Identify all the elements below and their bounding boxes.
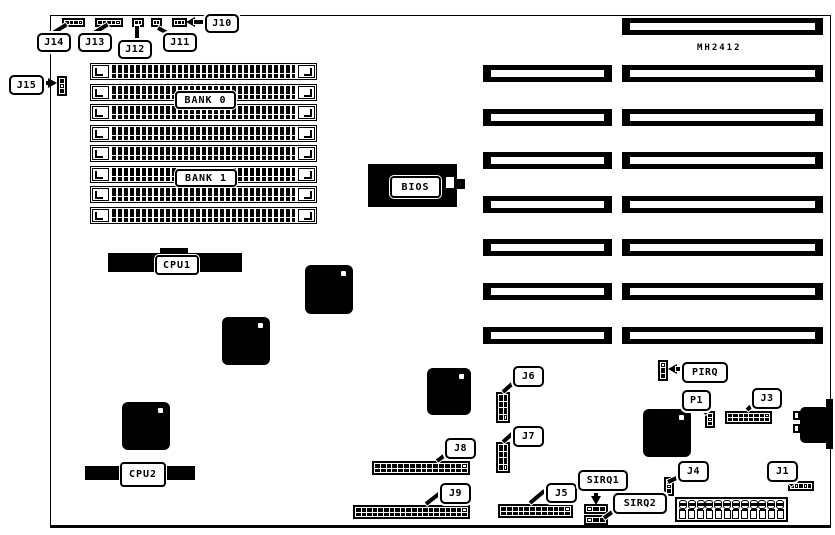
pin-cell bbox=[457, 508, 462, 512]
cpu1-label: CPU1 bbox=[155, 255, 199, 275]
pin-cell bbox=[429, 513, 434, 517]
simm-clip bbox=[92, 86, 109, 99]
callout-j8: J8 bbox=[445, 438, 476, 459]
pin-cell bbox=[356, 508, 361, 512]
pin-cell bbox=[462, 513, 467, 517]
pin-cell bbox=[504, 465, 508, 471]
callout-j12-label: J12 bbox=[125, 44, 145, 55]
pin-cell bbox=[795, 484, 798, 488]
pin-cell bbox=[499, 395, 503, 401]
power-connector bbox=[675, 497, 788, 522]
bank1-text: BANK 1 bbox=[185, 173, 227, 184]
j5-header bbox=[498, 504, 573, 518]
callout-j5-label: J5 bbox=[555, 488, 568, 499]
power-pin bbox=[705, 500, 713, 509]
pin-cell bbox=[542, 507, 547, 511]
pin-cell bbox=[356, 513, 361, 517]
callout-pirq-label: PIRQ bbox=[692, 367, 718, 378]
j10-jumper bbox=[172, 18, 187, 27]
cpu1-socket-tab bbox=[160, 248, 188, 253]
pin-cell bbox=[434, 508, 439, 512]
pin-cell bbox=[499, 408, 503, 414]
cpu2-text: CPU2 bbox=[129, 469, 157, 480]
pin-cell bbox=[504, 402, 508, 408]
pin-cell bbox=[373, 508, 378, 512]
pin-cell bbox=[398, 464, 403, 468]
simm-socket bbox=[90, 145, 317, 162]
j7-header bbox=[496, 442, 510, 473]
pin-cell bbox=[548, 507, 553, 511]
pin-cell bbox=[661, 374, 665, 378]
pin-cell bbox=[744, 414, 748, 417]
simm-socket bbox=[90, 186, 317, 203]
pin-cell bbox=[418, 513, 423, 517]
ic-chip bbox=[643, 409, 691, 457]
power-hole bbox=[724, 510, 731, 519]
power-pin bbox=[758, 500, 766, 509]
callout-j14: J14 bbox=[37, 33, 71, 52]
callout-sirq2: SIRQ2 bbox=[613, 493, 667, 514]
pin-cell bbox=[70, 21, 74, 24]
callout-p1-label: P1 bbox=[690, 395, 703, 406]
pin-cell bbox=[457, 513, 462, 517]
simm-clip bbox=[298, 106, 315, 119]
motherboard-diagram: J14 J13 J12 J11 J10 J15 BANK 0 BANK 1 MH… bbox=[0, 0, 835, 535]
pin-cell bbox=[499, 458, 503, 464]
pin-cell bbox=[404, 469, 409, 473]
j15-jumper bbox=[57, 76, 67, 96]
simm-contacts bbox=[112, 147, 295, 160]
expansion-slot-segment bbox=[622, 283, 823, 300]
expansion-slot-segment bbox=[622, 18, 823, 35]
pin-cell bbox=[504, 415, 508, 421]
pin-cell bbox=[504, 408, 508, 414]
pin-cell bbox=[499, 452, 503, 458]
pin-cell bbox=[135, 21, 138, 24]
sirq1-jumper bbox=[584, 504, 608, 514]
pin-cell bbox=[760, 414, 764, 417]
pin-cell bbox=[462, 464, 467, 468]
pin-cell bbox=[499, 465, 503, 471]
pin-cell bbox=[178, 21, 180, 24]
pin-cell bbox=[587, 507, 592, 511]
simm-clip bbox=[298, 147, 315, 160]
pin-cell bbox=[446, 508, 451, 512]
pin-cell bbox=[565, 507, 570, 511]
pin-cell bbox=[390, 508, 395, 512]
callout-sirq1: SIRQ1 bbox=[578, 470, 628, 491]
ic-chip bbox=[222, 317, 270, 365]
pin-cell bbox=[559, 507, 564, 511]
pin-cell bbox=[60, 89, 64, 93]
callout-j4: J4 bbox=[678, 461, 709, 482]
pin-cell bbox=[728, 418, 732, 421]
power-pin bbox=[750, 500, 758, 509]
j6-header bbox=[496, 392, 510, 423]
callout-j12: J12 bbox=[118, 40, 152, 59]
pin-cell bbox=[439, 469, 444, 473]
power-hole bbox=[750, 510, 757, 519]
pin-cell bbox=[804, 484, 807, 488]
power-hole bbox=[777, 510, 784, 519]
expansion-slot-segment bbox=[622, 327, 823, 344]
power-pin bbox=[688, 500, 696, 509]
pin-cell bbox=[451, 508, 456, 512]
bios-label: BIOS bbox=[390, 176, 441, 198]
pin-cell bbox=[384, 513, 389, 517]
callout-pirq: PIRQ bbox=[682, 362, 728, 383]
pin-cell bbox=[157, 21, 159, 24]
pin-cell bbox=[60, 79, 64, 83]
pin-cell bbox=[434, 513, 439, 517]
pin-cell bbox=[499, 445, 503, 451]
power-hole bbox=[688, 510, 695, 519]
pin-cell bbox=[74, 21, 78, 24]
pin-cell bbox=[440, 513, 445, 517]
pin-cell bbox=[733, 414, 737, 417]
pin-cell bbox=[378, 513, 383, 517]
expansion-slot-segment bbox=[483, 109, 612, 126]
pin-cell bbox=[427, 464, 432, 468]
pin-cell bbox=[749, 418, 753, 421]
callout-j3-label: J3 bbox=[760, 393, 773, 404]
pin-cell bbox=[462, 469, 467, 473]
pin-cell bbox=[524, 507, 529, 511]
arrowhead bbox=[48, 78, 57, 88]
j8-header bbox=[372, 461, 470, 475]
simm-contacts bbox=[112, 65, 295, 78]
pin-cell bbox=[542, 512, 547, 516]
callout-j11-label: J11 bbox=[170, 37, 190, 48]
power-hole bbox=[759, 510, 766, 519]
pin-cell bbox=[412, 508, 417, 512]
pin-cell bbox=[378, 508, 383, 512]
pin-cell bbox=[433, 464, 438, 468]
callout-j8-label: J8 bbox=[454, 443, 467, 454]
pin-cell bbox=[799, 484, 802, 488]
pin-cell bbox=[462, 508, 467, 512]
pin-cell bbox=[440, 508, 445, 512]
pin-cell bbox=[708, 418, 712, 421]
power-pin bbox=[767, 500, 775, 509]
callout-j10-label: J10 bbox=[212, 18, 232, 29]
pin-cell bbox=[175, 21, 177, 24]
simm-socket bbox=[90, 63, 317, 80]
callout-j3: J3 bbox=[752, 388, 782, 409]
pin-cell bbox=[362, 513, 367, 517]
pin-cell bbox=[416, 464, 421, 468]
pin-cell bbox=[412, 513, 417, 517]
callout-j6-label: J6 bbox=[522, 371, 535, 382]
pin-cell bbox=[808, 484, 811, 488]
pin-cell bbox=[456, 464, 461, 468]
pin-cell bbox=[708, 422, 712, 425]
keyboard-connector-tab bbox=[793, 424, 800, 433]
part-number-text: MH2412 bbox=[697, 43, 742, 53]
pin-cell bbox=[373, 513, 378, 517]
pin-cell bbox=[418, 508, 423, 512]
pin-cell bbox=[536, 512, 541, 516]
expansion-slot-segment bbox=[622, 152, 823, 169]
bank0-label: BANK 0 bbox=[175, 91, 236, 109]
simm-clip bbox=[92, 65, 109, 78]
power-hole bbox=[706, 510, 713, 519]
pin-cell bbox=[499, 415, 503, 421]
pin-cell bbox=[513, 507, 518, 511]
pin-cell bbox=[760, 418, 764, 421]
pin-cell bbox=[392, 464, 397, 468]
callout-j11: J11 bbox=[163, 33, 197, 52]
power-hole bbox=[768, 510, 775, 519]
j9-header bbox=[353, 505, 470, 519]
power-pin bbox=[714, 500, 722, 509]
simm-clip bbox=[92, 127, 109, 140]
simm-clip bbox=[298, 65, 315, 78]
pin-cell bbox=[507, 512, 512, 516]
pin-cell bbox=[410, 464, 415, 468]
pin-cell bbox=[362, 508, 367, 512]
pin-cell bbox=[410, 469, 415, 473]
callout-j7: J7 bbox=[513, 426, 544, 447]
pin-cell bbox=[554, 507, 559, 511]
pin-cell bbox=[667, 485, 671, 489]
expansion-slot-segment bbox=[483, 239, 612, 256]
pin-cell bbox=[116, 21, 120, 24]
callout-j15: J15 bbox=[9, 75, 44, 95]
pin-cell bbox=[112, 21, 116, 24]
pin-cell bbox=[433, 469, 438, 473]
ic-chip bbox=[427, 368, 471, 415]
pin-cell bbox=[451, 464, 456, 468]
simm-socket bbox=[90, 125, 317, 142]
callout-j6: J6 bbox=[513, 366, 544, 387]
pin-cell bbox=[661, 368, 665, 372]
pin-cell bbox=[513, 512, 518, 516]
pin-cell bbox=[749, 414, 753, 417]
callout-j9: J9 bbox=[440, 483, 471, 504]
pin-cell bbox=[593, 507, 598, 511]
simm-socket bbox=[90, 207, 317, 224]
power-pin bbox=[741, 500, 749, 509]
expansion-slot-segment bbox=[622, 65, 823, 82]
simm-clip bbox=[298, 209, 315, 222]
pin-cell bbox=[519, 512, 524, 516]
power-pin bbox=[697, 500, 705, 509]
callout-j7-label: J7 bbox=[522, 431, 535, 442]
pin-cell bbox=[154, 21, 156, 24]
ic-chip bbox=[122, 402, 170, 450]
j13-jumper bbox=[95, 18, 123, 27]
callout-j15-label: J15 bbox=[17, 80, 37, 91]
callout-j1-label: J1 bbox=[776, 466, 789, 477]
j11-jumper bbox=[151, 18, 162, 27]
callout-j10: J10 bbox=[205, 14, 239, 33]
ic-chip bbox=[305, 265, 353, 314]
pin-cell bbox=[530, 507, 535, 511]
pin-cell bbox=[401, 513, 406, 517]
simm-clip bbox=[298, 168, 315, 181]
pin-cell bbox=[530, 512, 535, 516]
callout-j13: J13 bbox=[78, 33, 112, 52]
expansion-slot-segment bbox=[483, 152, 612, 169]
simm-clip bbox=[92, 168, 109, 181]
pin-cell bbox=[445, 469, 450, 473]
pin-cell bbox=[504, 445, 508, 451]
pin-cell bbox=[422, 464, 427, 468]
power-hole bbox=[741, 510, 748, 519]
pin-cell bbox=[60, 84, 64, 88]
pin-cell bbox=[79, 21, 83, 24]
pin-cell bbox=[398, 469, 403, 473]
callout-j13-label: J13 bbox=[85, 37, 105, 48]
pin-cell bbox=[375, 469, 380, 473]
expansion-slot-segment bbox=[483, 65, 612, 82]
simm-clip bbox=[92, 209, 109, 222]
pin-cell bbox=[504, 452, 508, 458]
pin-cell bbox=[661, 363, 665, 367]
simm-contacts bbox=[112, 209, 295, 222]
pin-cell bbox=[423, 513, 428, 517]
expansion-slot-segment bbox=[483, 327, 612, 344]
pin-cell bbox=[600, 507, 605, 511]
bank0-text: BANK 0 bbox=[184, 95, 226, 106]
callout-j5: J5 bbox=[546, 483, 577, 503]
pin-cell bbox=[423, 508, 428, 512]
pin-cell bbox=[733, 418, 737, 421]
power-hole bbox=[697, 510, 704, 519]
power-pin bbox=[776, 500, 784, 509]
pin-cell bbox=[139, 21, 142, 24]
power-hole bbox=[715, 510, 722, 519]
simm-contacts bbox=[112, 188, 295, 201]
pin-cell bbox=[504, 458, 508, 464]
pin-cell bbox=[501, 512, 506, 516]
pin-cell bbox=[404, 464, 409, 468]
pin-cell bbox=[728, 414, 732, 417]
power-pin bbox=[679, 500, 687, 509]
power-hole bbox=[732, 510, 739, 519]
callout-j9-label: J9 bbox=[449, 488, 462, 499]
pin-cell bbox=[524, 512, 529, 516]
callout-j4-label: J4 bbox=[687, 466, 700, 477]
expansion-slot-segment bbox=[622, 196, 823, 213]
pin-cell bbox=[367, 513, 372, 517]
pin-cell bbox=[559, 512, 564, 516]
callout-sirq2-label: SIRQ2 bbox=[624, 498, 657, 509]
pin-cell bbox=[406, 513, 411, 517]
cpu1-text: CPU1 bbox=[163, 260, 191, 271]
simm-clip bbox=[92, 147, 109, 160]
pin-cell bbox=[593, 518, 598, 522]
pin-cell bbox=[416, 469, 421, 473]
pin-cell bbox=[401, 508, 406, 512]
simm-clip bbox=[298, 86, 315, 99]
simm-clip bbox=[92, 188, 109, 201]
pin-cell bbox=[445, 464, 450, 468]
power-pin-row bbox=[679, 500, 784, 509]
simm-clip bbox=[298, 127, 315, 140]
bios-text: BIOS bbox=[401, 182, 429, 193]
pin-cell bbox=[390, 513, 395, 517]
pin-cell bbox=[387, 464, 392, 468]
pin-cell bbox=[548, 512, 553, 516]
pin-cell bbox=[667, 489, 671, 493]
expansion-slot-segment bbox=[483, 283, 612, 300]
pin-cell bbox=[381, 469, 386, 473]
pin-cell bbox=[536, 507, 541, 511]
callout-p1: P1 bbox=[682, 390, 711, 411]
pin-cell bbox=[451, 469, 456, 473]
pin-cell bbox=[427, 469, 432, 473]
callout-j1: J1 bbox=[767, 461, 798, 482]
pin-cell bbox=[754, 414, 758, 417]
keyboard-connector-tab bbox=[793, 411, 800, 420]
pin-cell bbox=[107, 21, 111, 24]
power-pin bbox=[723, 500, 731, 509]
pin-cell bbox=[554, 512, 559, 516]
power-pin bbox=[732, 500, 740, 509]
simm-contacts bbox=[112, 127, 295, 140]
pin-cell bbox=[384, 508, 389, 512]
pin-cell bbox=[765, 418, 769, 421]
bank1-label: BANK 1 bbox=[175, 169, 237, 187]
pin-cell bbox=[422, 469, 427, 473]
pin-cell bbox=[739, 414, 743, 417]
pin-cell bbox=[519, 507, 524, 511]
keyboard-connector-mount bbox=[826, 399, 833, 449]
pin-cell bbox=[446, 513, 451, 517]
pin-cell bbox=[744, 418, 748, 421]
pin-cell bbox=[708, 414, 712, 417]
pin-cell bbox=[501, 507, 506, 511]
pin-cell bbox=[367, 508, 372, 512]
pin-cell bbox=[395, 508, 400, 512]
pin-cell bbox=[406, 508, 411, 512]
pin-cell bbox=[456, 469, 461, 473]
pin-cell bbox=[499, 402, 503, 408]
expansion-slot-segment bbox=[483, 196, 612, 213]
pin-cell bbox=[439, 464, 444, 468]
pin-cell bbox=[565, 512, 570, 516]
power-hole-row bbox=[679, 510, 784, 519]
pin-cell bbox=[451, 513, 456, 517]
pin-cell bbox=[504, 395, 508, 401]
simm-clip bbox=[298, 188, 315, 201]
j3-header bbox=[725, 411, 772, 424]
pin-cell bbox=[587, 518, 592, 522]
power-hole bbox=[679, 510, 686, 519]
pin-cell bbox=[375, 464, 380, 468]
pin-cell bbox=[739, 418, 743, 421]
simm-clip bbox=[92, 106, 109, 119]
callout-sirq1-label: SIRQ1 bbox=[587, 475, 620, 486]
cpu2-label: CPU2 bbox=[120, 462, 166, 487]
pin-cell bbox=[387, 469, 392, 473]
arrowhead bbox=[591, 496, 601, 505]
expansion-slot-segment bbox=[622, 109, 823, 126]
pin-cell bbox=[507, 507, 512, 511]
pin-cell bbox=[765, 414, 769, 417]
pin-cell bbox=[98, 21, 102, 24]
pirq-jumper bbox=[658, 360, 668, 381]
pin-cell bbox=[182, 21, 184, 24]
pin-cell bbox=[392, 469, 397, 473]
callout-j14-label: J14 bbox=[44, 37, 64, 48]
pin-cell bbox=[381, 464, 386, 468]
pin-cell bbox=[395, 513, 400, 517]
callout-tail bbox=[135, 26, 139, 41]
pin-cell bbox=[754, 418, 758, 421]
